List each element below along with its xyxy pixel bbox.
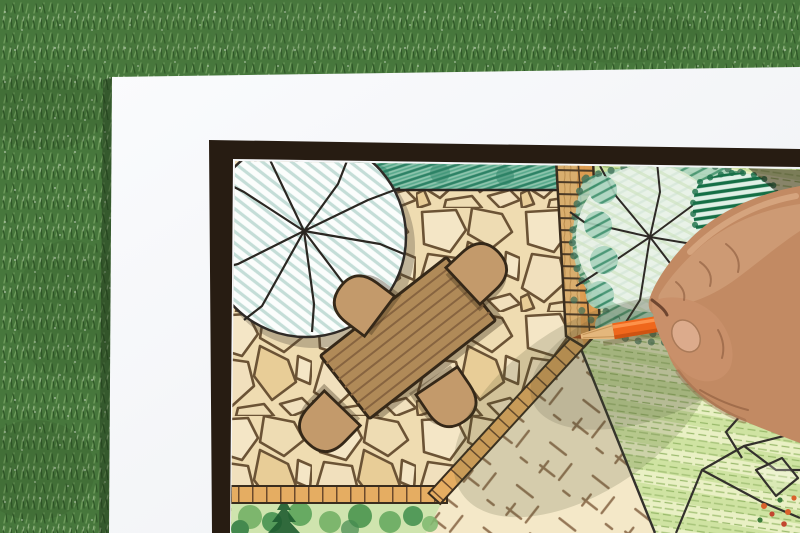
garden-plan-photo: [0, 0, 800, 533]
photo-scene: [0, 0, 800, 533]
